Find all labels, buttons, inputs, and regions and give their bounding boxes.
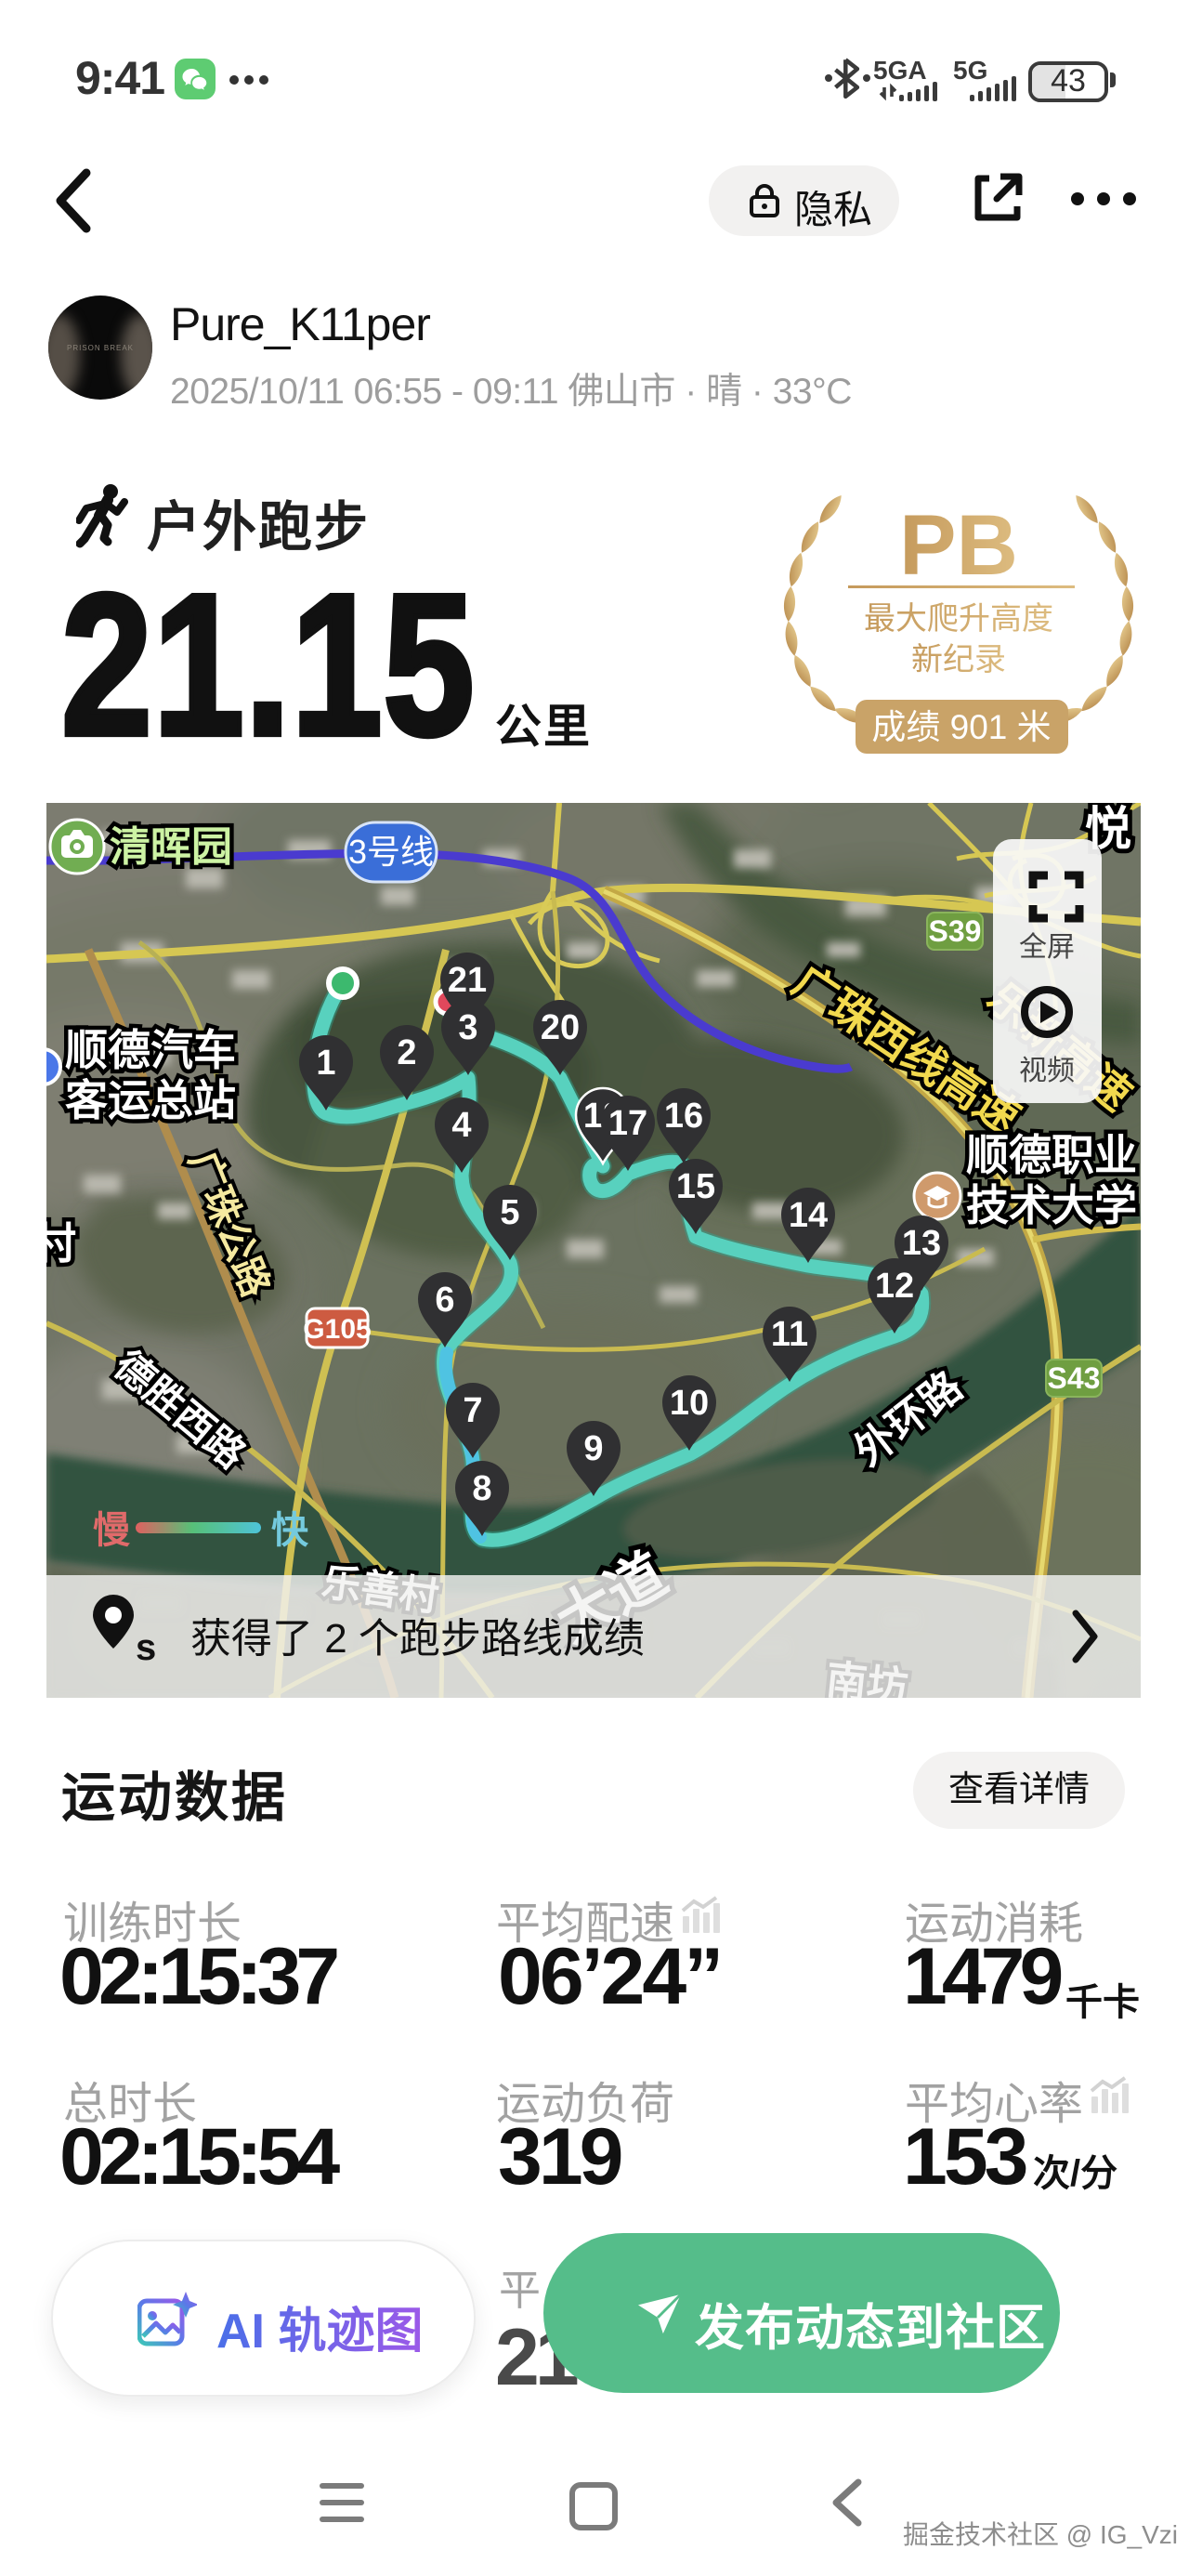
svg-text:1: 1 (316, 1044, 335, 1083)
svg-text:17: 17 (608, 1104, 647, 1143)
svg-text:11: 11 (771, 1315, 808, 1354)
svg-text:技术大学: 技术大学 (966, 1181, 1137, 1229)
svg-text:全屏: 全屏 (1019, 932, 1075, 963)
svg-text:6: 6 (435, 1281, 454, 1320)
svg-text:5: 5 (500, 1193, 519, 1232)
svg-text:获得了 2 个跑步路线成绩: 获得了 2 个跑步路线成绩 (190, 1616, 645, 1662)
svg-text:顺德汽车: 顺德汽车 (65, 1026, 236, 1074)
svg-text:16: 16 (664, 1097, 703, 1136)
svg-text:10: 10 (670, 1384, 709, 1423)
svg-text:村: 村 (46, 1219, 76, 1268)
svg-text:成绩 901 米: 成绩 901 米 (871, 708, 1051, 746)
svg-text:4: 4 (451, 1106, 471, 1145)
svg-text:8: 8 (472, 1469, 491, 1508)
svg-text:PB: PB (899, 498, 1018, 593)
svg-text:15: 15 (676, 1167, 715, 1206)
svg-text:21: 21 (448, 961, 487, 1000)
svg-text:顺德职业: 顺德职业 (966, 1131, 1137, 1179)
svg-text:慢: 慢 (93, 1510, 130, 1551)
svg-text:客运总站: 客运总站 (65, 1076, 236, 1124)
svg-text:G105: G105 (303, 1314, 371, 1345)
svg-text:3号线: 3号线 (348, 833, 434, 871)
svg-text:12: 12 (875, 1267, 914, 1306)
svg-text:视频: 视频 (1019, 1056, 1075, 1086)
svg-text:13: 13 (902, 1224, 941, 1263)
svg-text:S43: S43 (1048, 1361, 1101, 1395)
svg-text:s: s (136, 1627, 156, 1668)
svg-text:S39: S39 (929, 914, 982, 948)
svg-text:7: 7 (463, 1391, 482, 1430)
svg-text:14: 14 (789, 1196, 828, 1235)
svg-text:最大爬升高度: 最大爬升高度 (864, 601, 1053, 637)
svg-text:9: 9 (583, 1429, 603, 1468)
svg-text:20: 20 (541, 1008, 580, 1047)
svg-text:快: 快 (271, 1510, 309, 1551)
svg-text:2: 2 (397, 1033, 416, 1072)
svg-text:3: 3 (458, 1008, 477, 1047)
svg-text:清晖园: 清晖园 (110, 824, 232, 870)
svg-text:新纪录: 新纪录 (911, 642, 1006, 677)
